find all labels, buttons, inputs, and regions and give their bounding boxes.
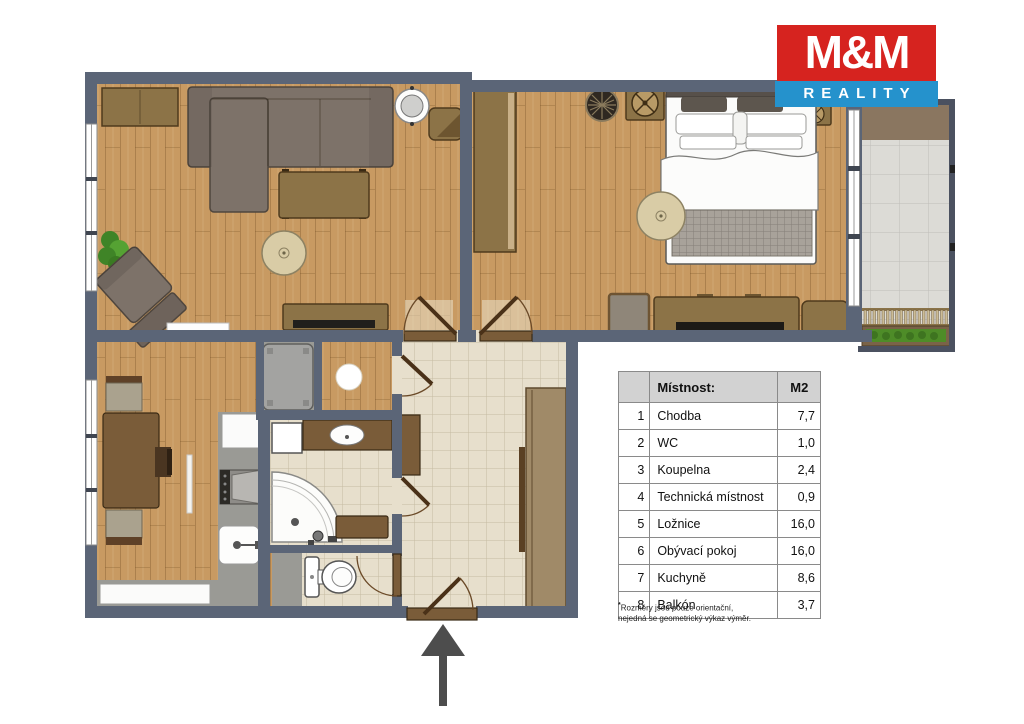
square-side-table (429, 108, 462, 140)
floor-plan (0, 0, 1024, 724)
bedroom-door (480, 297, 532, 341)
shower-faucet (313, 531, 323, 541)
shower-drain (291, 518, 299, 526)
dining-table (103, 413, 159, 508)
dining-chair-bottom (106, 510, 142, 545)
round-rug-living (262, 231, 306, 275)
table-row: 7 Kuchyně 8,6 (619, 565, 821, 592)
kitchen-window (86, 380, 97, 545)
table-row: 6 Obývací pokoj 16,0 (619, 538, 821, 565)
round-rug-bedroom (637, 192, 685, 240)
living-room-window (86, 124, 97, 291)
entrance-arrow-icon (421, 624, 465, 706)
shaft-floor (272, 553, 302, 606)
ceiling-light (336, 364, 362, 390)
toilet (305, 557, 356, 597)
dining-chair-right (155, 447, 172, 477)
balcony-mat (862, 105, 950, 140)
logo-mm-text: M&M (777, 25, 936, 81)
stool (609, 294, 649, 334)
header-empty (619, 372, 650, 403)
wardrobe-bedroom (474, 90, 516, 252)
hallway-wardrobe (519, 388, 566, 608)
footnote: *Rozměry jsou pouze orientační, nejedná … (618, 601, 751, 625)
balcony-door-window (848, 110, 860, 306)
double-bed (661, 89, 818, 264)
footnote-line1: Rozměry jsou pouze orientační, (621, 604, 734, 613)
mm-reality-logo: M&M REALITY (777, 25, 936, 107)
bathroom-mirror (272, 423, 302, 453)
table-row: 3 Koupelna 2,4 (619, 457, 821, 484)
living-room-door (404, 297, 456, 341)
logo-reality-text: REALITY (775, 81, 938, 107)
side-cabinet (802, 301, 848, 335)
wc (305, 557, 356, 597)
fridge (100, 584, 210, 604)
table-row: 1 Chodba 7,7 (619, 403, 821, 430)
tv (293, 320, 375, 328)
stove (220, 470, 262, 504)
table-header-row: Místnost: M2 (619, 372, 821, 403)
coffee-table (279, 169, 369, 219)
header-room: Místnost: (650, 372, 777, 403)
vanity (303, 420, 392, 450)
tv-stand (283, 304, 388, 330)
wall-clock-decor (586, 89, 618, 121)
kitchen-sink (219, 526, 260, 564)
table-row: 5 Ložnice 16,0 (619, 511, 821, 538)
balcony (862, 308, 950, 346)
room-area-table: Místnost: M2 1 Chodba 7,7 2 WC 1,0 3 Kou… (618, 371, 821, 619)
planter (862, 326, 950, 346)
footnote-line2: nejedná se geometrický výkaz výměr. (618, 614, 751, 623)
table-row: 2 WC 1,0 (619, 430, 821, 457)
bathroom-cabinet (336, 516, 388, 538)
tv-bedroom (676, 322, 784, 331)
dining-chair-top (106, 376, 142, 411)
wall-bench (187, 455, 192, 513)
header-area: M2 (777, 372, 820, 403)
table-row: 4 Technická místnost 0,9 (619, 484, 821, 511)
